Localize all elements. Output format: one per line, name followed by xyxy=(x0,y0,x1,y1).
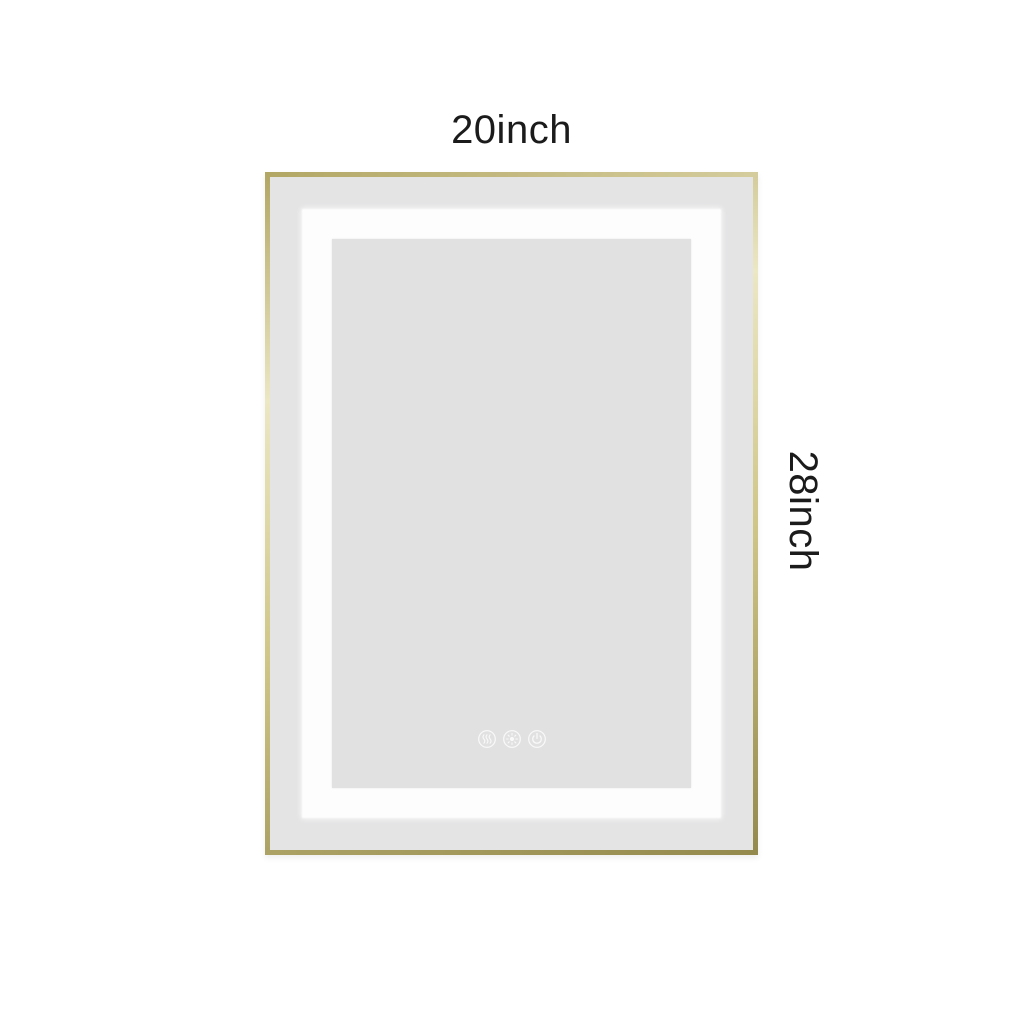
touch-control-panel xyxy=(477,729,547,749)
defog-button xyxy=(477,729,497,749)
brightness-button xyxy=(502,729,522,749)
width-dimension-label: 20inch xyxy=(265,110,758,150)
product-image: 20inch 28inch xyxy=(0,0,1024,1024)
mirror-frame xyxy=(265,172,758,855)
defog-icon xyxy=(477,729,497,749)
power-button xyxy=(527,729,547,749)
brightness-icon xyxy=(502,729,522,749)
mirror-inner-surface xyxy=(332,239,691,788)
height-dimension-label: 28inch xyxy=(783,451,823,572)
power-icon xyxy=(527,729,547,749)
